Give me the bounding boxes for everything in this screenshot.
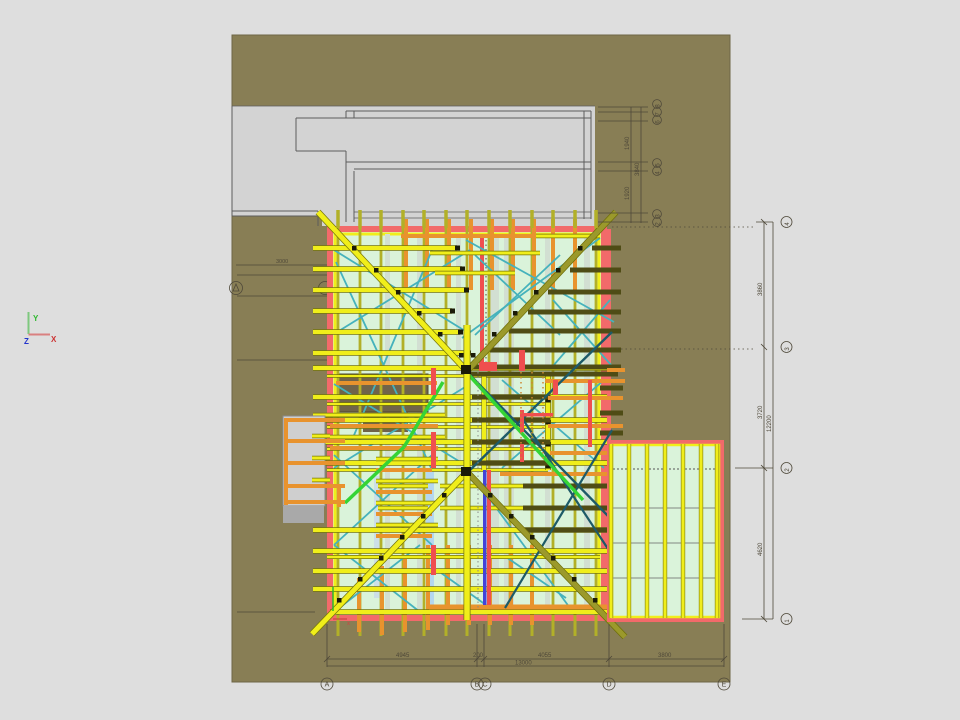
svg-text:1940: 1940 — [625, 136, 631, 150]
svg-text:A: A — [325, 682, 330, 689]
svg-text:Z: Z — [24, 337, 29, 346]
svg-text:E: E — [722, 682, 727, 689]
svg-text:200: 200 — [473, 653, 484, 659]
svg-text:3860: 3860 — [758, 282, 764, 296]
svg-text:1920: 1920 — [625, 186, 631, 200]
svg-text:3800: 3800 — [658, 653, 672, 659]
svg-text:3000: 3000 — [276, 259, 288, 265]
svg-text:X: X — [51, 335, 57, 344]
svg-text:x: x — [347, 621, 350, 627]
svg-text:D: D — [606, 682, 611, 689]
svg-text:Y: Y — [33, 314, 39, 323]
svg-text:C: C — [482, 682, 487, 689]
svg-text:4945: 4945 — [396, 653, 410, 659]
svg-text:13000: 13000 — [515, 661, 532, 667]
svg-text:4620: 4620 — [758, 542, 764, 556]
svg-text:12200: 12200 — [767, 415, 773, 432]
svg-text:3840: 3840 — [635, 162, 641, 176]
svg-text:3720: 3720 — [758, 405, 764, 419]
svg-text:4055: 4055 — [538, 653, 552, 659]
